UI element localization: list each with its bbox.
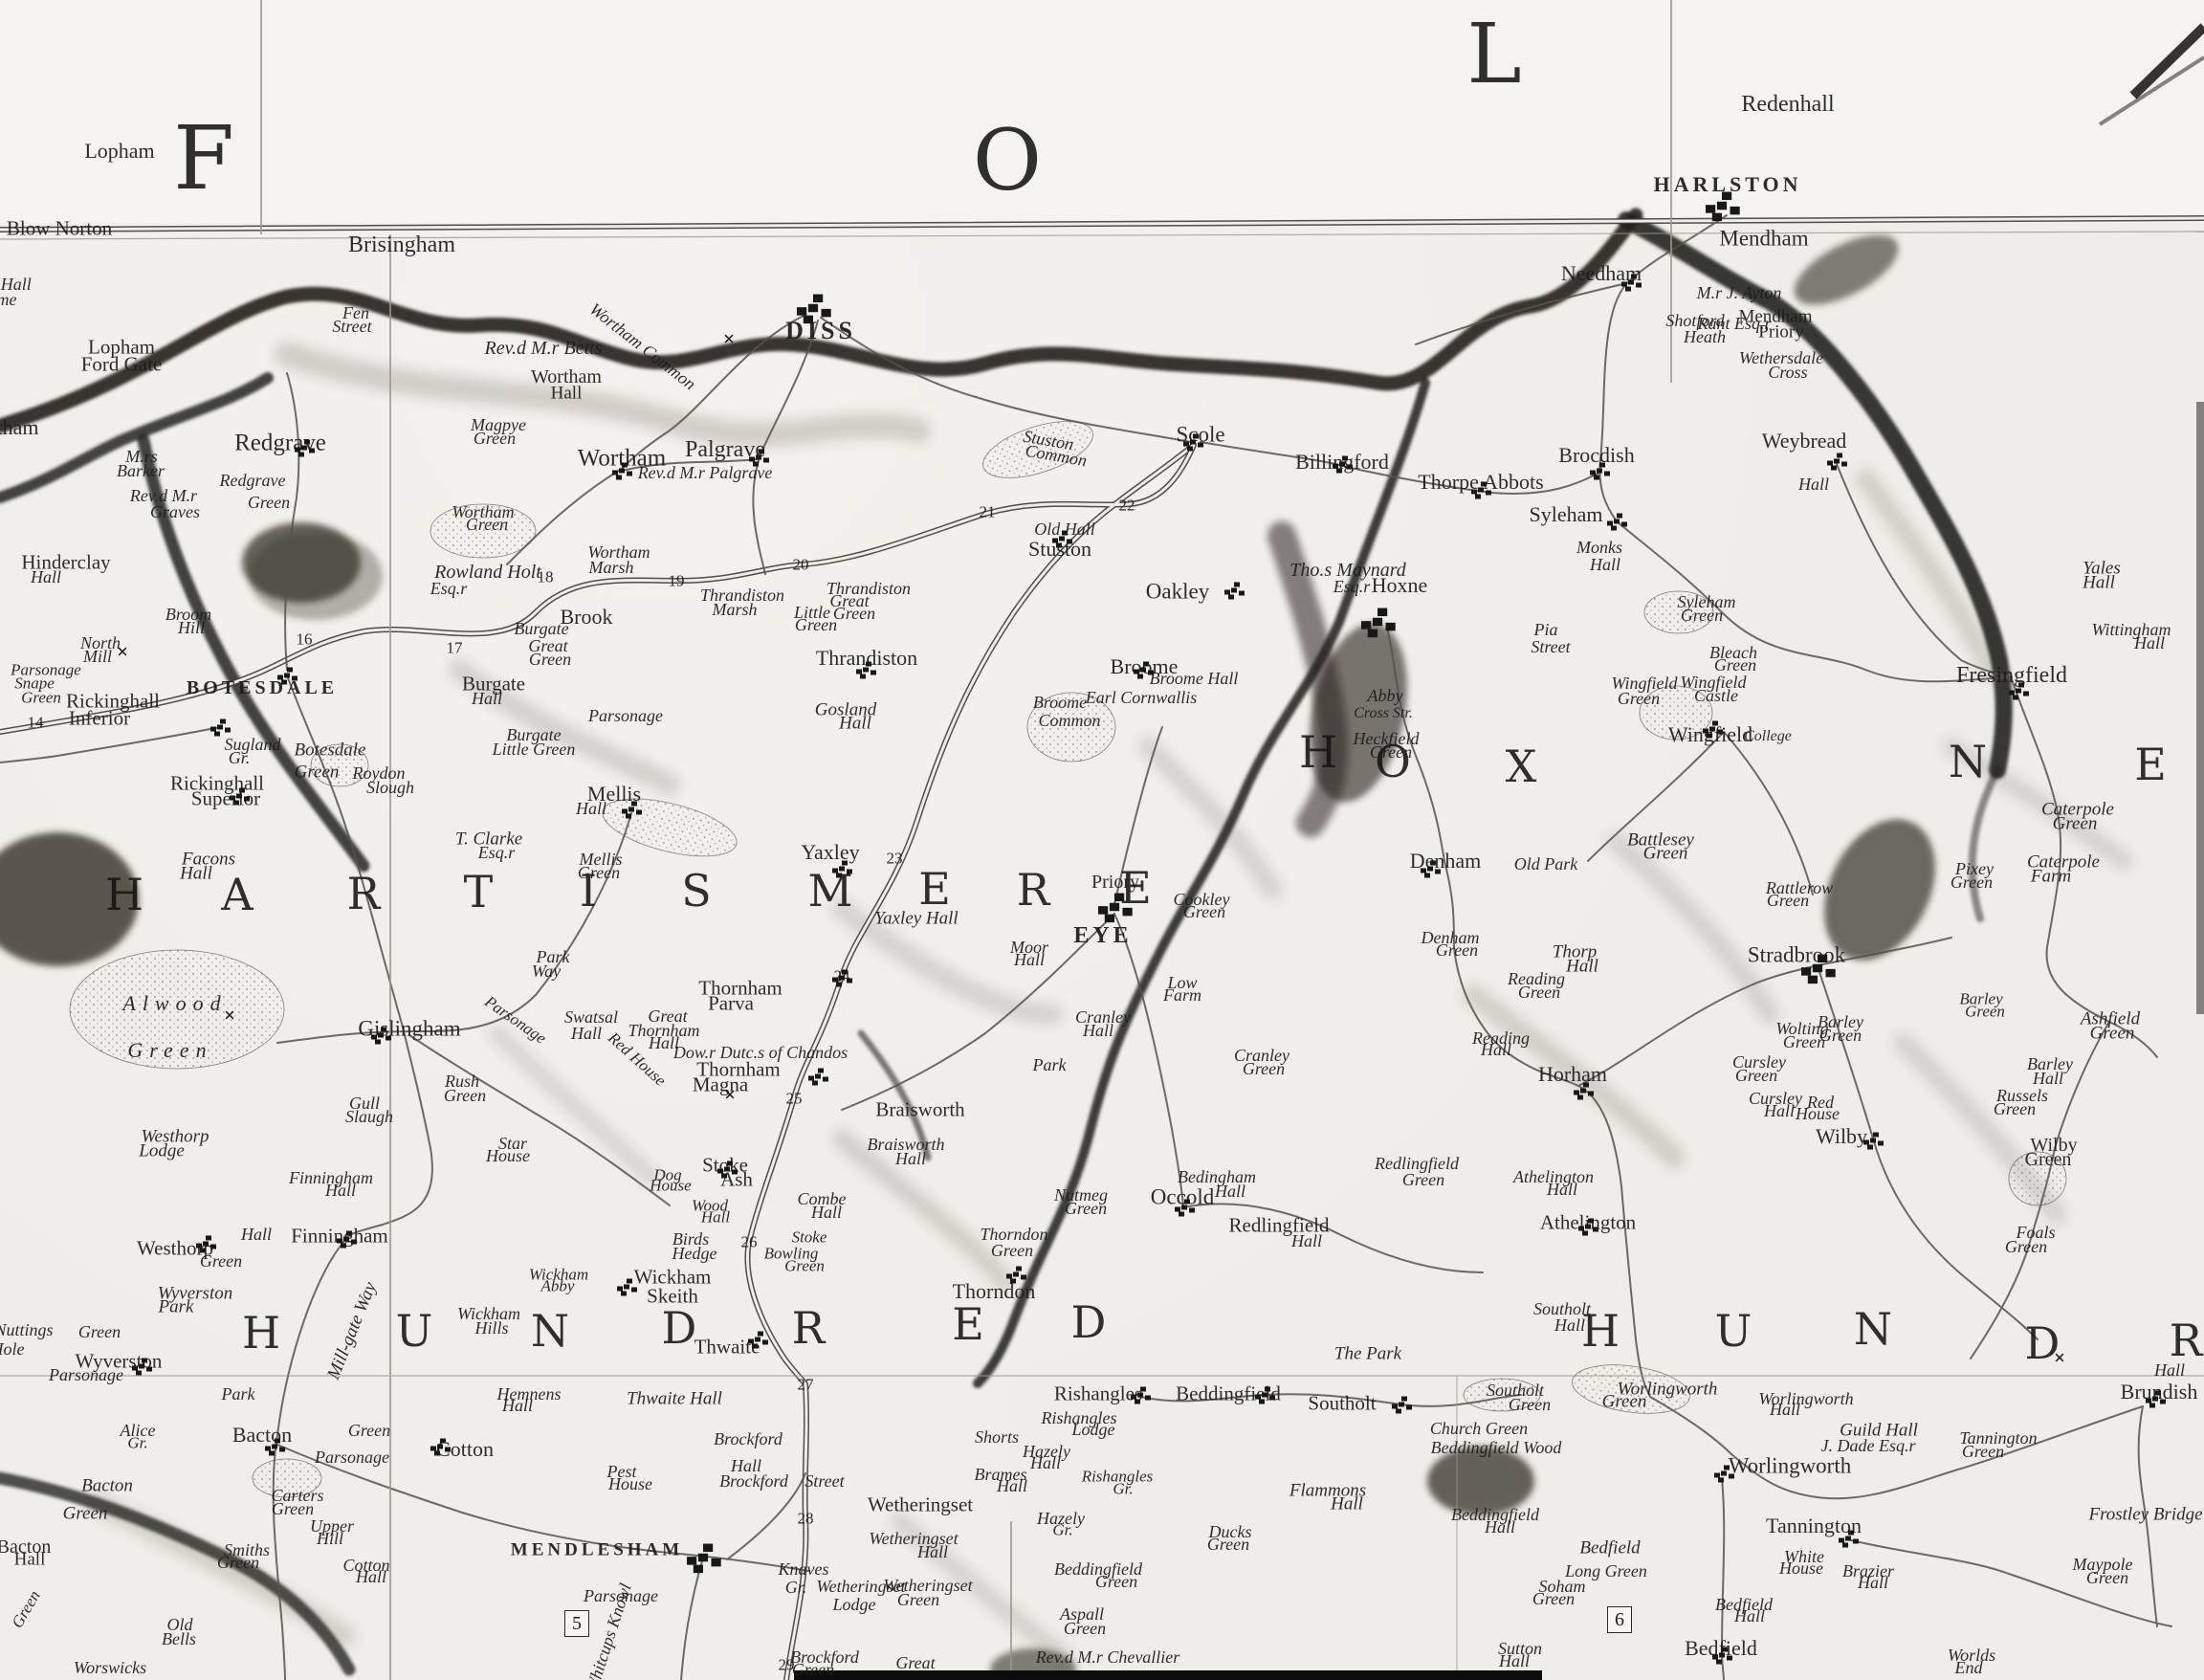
place-label: Hall	[241, 1226, 272, 1243]
settlement-mark	[343, 1237, 349, 1242]
place-label: Redgrave	[234, 431, 326, 455]
place-label: Brocdish	[1558, 445, 1634, 466]
place-label: Stradbrook	[1748, 944, 1845, 966]
milestone-number: 27	[798, 1377, 814, 1393]
place-label: Redenhall	[1741, 93, 1834, 116]
place-label: Priory	[1091, 873, 1139, 892]
hundred-letter-hundred-west: H	[242, 1311, 280, 1355]
settlement-mark	[1181, 1205, 1187, 1210]
place-label: Bells	[162, 1630, 196, 1647]
place-label: Hall	[2154, 1361, 2185, 1379]
place-label: Brockford	[714, 1430, 782, 1448]
windmill-icon: ✕	[224, 1009, 236, 1024]
hundred-letter-hoxne: X	[1506, 744, 1537, 788]
place-label: Gr.	[1052, 1522, 1072, 1538]
settlement-mark	[698, 1554, 708, 1562]
settlement-mark	[1262, 1393, 1267, 1398]
place-label: Green	[1735, 1067, 1777, 1084]
place-label: Brockford	[719, 1472, 788, 1490]
place-label: Green	[1643, 845, 1688, 863]
hundred-letter-hundred-west: U	[396, 1309, 433, 1353]
place-label: Abby	[541, 1278, 575, 1294]
place-label: End	[1955, 1659, 1983, 1676]
place-label: Syleham	[1530, 504, 1603, 525]
place-label: Farm	[2031, 868, 2071, 886]
place-label: Priory	[1758, 323, 1804, 342]
hundred-letter-hundred-west: E	[952, 1302, 984, 1346]
hundred-letter-hundred-west: D	[662, 1306, 697, 1350]
place-label: Worlingworth	[1729, 1455, 1851, 1477]
place-label: Green	[78, 1323, 121, 1340]
place-label: House	[650, 1178, 691, 1194]
place-label: Hall	[180, 865, 212, 883]
place-label: Ford Gate	[81, 355, 163, 375]
place-label: Green	[1602, 1393, 1647, 1411]
settlement-mark	[1614, 519, 1620, 524]
place-label: Graves	[150, 503, 200, 520]
place-label: Green	[1243, 1060, 1285, 1077]
place-label: Green	[2053, 815, 2098, 833]
place-label: Rishangles	[1054, 1384, 1142, 1404]
settlement-mark	[1339, 462, 1345, 467]
place-label: DISS	[785, 319, 856, 343]
place-label: Lopham	[84, 141, 154, 162]
place-label: Great	[895, 1654, 935, 1671]
settlement-mark	[2152, 1397, 2158, 1402]
place-label: Pia	[1534, 621, 1558, 638]
place-label: Green	[1783, 1033, 1825, 1050]
place-label: Green	[1509, 1396, 1551, 1413]
labels-layer: FOLHARTISMEREHOXNEHUNDREDHUNDRLophamBlow…	[0, 0, 2204, 1680]
settlement-mark	[2016, 689, 2021, 694]
place-label: Hall	[1331, 1495, 1363, 1514]
settlement-mark	[1140, 668, 1146, 673]
place-label: Denham	[1410, 851, 1482, 872]
place-label: Green	[1095, 1573, 1137, 1590]
place-label: Gr.	[229, 749, 251, 766]
place-label: Green	[1618, 690, 1660, 707]
place-label: MENDLESHAM	[511, 1541, 683, 1559]
windmill-icon: ✕	[2054, 1352, 2066, 1366]
place-label: Green	[474, 430, 516, 447]
milestone-number: 18	[538, 569, 554, 586]
place-label: Old Hall	[1034, 520, 1095, 538]
place-label: Green	[1065, 1200, 1107, 1217]
place-label: College	[1744, 729, 1792, 744]
place-label: Marsh	[588, 559, 633, 576]
place-label: Green	[578, 864, 620, 881]
place-label: Bacton	[81, 1477, 133, 1495]
windmill-icon: ✕	[723, 333, 736, 347]
place-label: Palgrave	[685, 438, 765, 461]
hundred-letter-hartismere: S	[681, 869, 712, 913]
hundred-letter-hundred-west: R	[792, 1306, 826, 1350]
place-label: Hall	[576, 800, 606, 817]
settlement-mark	[839, 867, 845, 872]
place-label: Green	[127, 1040, 212, 1061]
place-label: Hall	[31, 568, 61, 586]
place-label: Hall	[1499, 1652, 1530, 1669]
place-label: House	[1779, 1559, 1823, 1577]
place-label: Hill	[317, 1530, 343, 1547]
milestone-number: 19	[669, 573, 685, 589]
place-label: Little Green	[493, 741, 576, 758]
place-label: Slough	[366, 779, 414, 796]
place-label: Beddingfield Wood	[1431, 1439, 1562, 1456]
county-letter: L	[1466, 13, 1521, 96]
place-label: Hill	[178, 619, 205, 636]
place-label: Wilby	[1816, 1126, 1867, 1147]
place-label: Hills	[474, 1319, 508, 1337]
place-label: Shorts	[975, 1428, 1019, 1446]
place-label: Common	[1038, 712, 1100, 729]
place-label: Green	[1951, 873, 1993, 891]
place-label: Farm	[1163, 986, 1201, 1004]
settlement-mark	[1373, 618, 1382, 627]
place-label: Green	[795, 616, 837, 633]
place-label: Green	[1370, 743, 1412, 761]
place-label: Green	[2086, 1569, 2128, 1586]
settlement-mark	[628, 807, 634, 812]
place-label: Street	[804, 1472, 844, 1490]
place-label: Redgrave	[220, 472, 286, 489]
place-label: Scole	[1176, 424, 1224, 446]
place-label: Hall	[502, 1397, 533, 1414]
milestone-number: 22	[1119, 497, 1135, 514]
settlement-mark	[1580, 1089, 1586, 1094]
place-label: Hall	[1030, 1454, 1061, 1471]
hundred-letter-hartismere: M	[807, 869, 852, 913]
place-label: Green	[1436, 941, 1478, 959]
place-label: Marsh	[712, 601, 757, 618]
settlement-mark	[1709, 727, 1715, 732]
settlement-mark	[272, 1445, 277, 1449]
place-label: Rev.d M.r Betts	[485, 339, 603, 358]
place-label: Hall	[895, 1150, 926, 1167]
place-label: Ash	[720, 1170, 753, 1190]
place-label: Hall	[1566, 958, 1598, 976]
place-label: Skeith	[647, 1287, 698, 1307]
settlement-mark	[378, 1033, 384, 1038]
settlement-mark	[724, 1167, 730, 1172]
place-label: Alwood	[122, 993, 227, 1014]
place-label: Green	[295, 763, 340, 782]
place-label: Cotton	[436, 1439, 494, 1460]
settlement-mark	[1110, 903, 1119, 912]
place-label: Park	[222, 1385, 255, 1403]
place-label: Green	[2025, 1150, 2072, 1169]
settlement-mark	[1013, 1272, 1019, 1277]
place-label: Hall	[1764, 1102, 1795, 1119]
place-label: Parsonage	[588, 707, 663, 724]
place-label: Green	[991, 1242, 1033, 1259]
hundred-letter-hundred-east: R	[2170, 1318, 2203, 1362]
place-label: Common	[1024, 441, 1088, 469]
place-label: Broome	[1033, 694, 1087, 711]
place-label: Esq.r	[478, 844, 516, 861]
settlement-mark	[1059, 537, 1065, 542]
place-label: Cross Str.	[1354, 706, 1413, 721]
hundred-letter-hartismere: R	[1017, 868, 1050, 912]
place-label: Green	[897, 1591, 939, 1608]
place-label: Broome Hall	[1150, 670, 1239, 687]
place-label: Hall	[1554, 1316, 1585, 1334]
place-label: Mill-gate Way	[324, 1280, 380, 1382]
place-label: Green	[1532, 1590, 1575, 1607]
place-label: Hall	[1734, 1607, 1765, 1625]
settlement-mark	[808, 304, 818, 313]
place-label: Lodge	[1072, 1421, 1115, 1438]
place-label: Bacton	[232, 1425, 292, 1446]
place-label: Green	[1518, 984, 1560, 1001]
place-label: Green	[1714, 656, 1756, 674]
place-label: Old Park	[1514, 855, 1578, 873]
place-label: Green	[1994, 1100, 2036, 1117]
place-label: Hole	[0, 1340, 25, 1358]
place-label: Athelington	[1540, 1213, 1636, 1233]
settlement-mark	[619, 469, 625, 474]
place-label: Way	[532, 962, 561, 980]
place-label: Stoke	[792, 1229, 827, 1246]
place-label: Hall	[325, 1182, 356, 1199]
place-label: Green	[1767, 892, 1809, 909]
settlement-mark	[1719, 1653, 1725, 1658]
milestone-number: 14	[28, 715, 44, 731]
place-label: Green	[1064, 1620, 1106, 1637]
settlement-mark	[1813, 964, 1822, 973]
settlement-mark	[1845, 1536, 1851, 1541]
milestone-number: 20	[793, 557, 809, 573]
place-label: Hall	[1485, 1518, 1515, 1536]
place-label: Hall	[14, 1551, 46, 1569]
hundred-letter-hoxne: E	[2134, 742, 2167, 786]
milestone-number: 21	[980, 504, 996, 520]
settlement-mark	[284, 674, 290, 678]
place-label: Hall	[1014, 951, 1045, 968]
place-label: Green	[2005, 1238, 2047, 1255]
settlement-mark	[755, 1337, 760, 1342]
place-label: Hall	[1083, 1022, 1113, 1039]
place-label: Hedge	[672, 1245, 717, 1262]
place-label: Green	[348, 1422, 390, 1439]
place-label: Superior	[191, 789, 260, 809]
place-label: Rev.d M.r Chevallier	[1036, 1648, 1180, 1666]
place-label: Green	[529, 651, 571, 668]
place-label: Green	[444, 1087, 486, 1104]
place-label: Hall	[551, 385, 583, 403]
place-label: me	[0, 291, 17, 308]
settlement-mark	[1597, 469, 1602, 474]
settlement-mark	[437, 1445, 443, 1449]
place-label: Green	[1965, 1004, 2005, 1020]
place-label: Thwaite	[694, 1337, 760, 1358]
place-label: Burgate	[514, 620, 568, 637]
place-label: Green	[63, 1505, 108, 1523]
place-label: Magna	[693, 1075, 748, 1095]
settlement-mark	[236, 794, 242, 799]
place-label: Hall	[2033, 1070, 2063, 1087]
place-label: Gr.	[127, 1435, 147, 1451]
grid-reference-number: 6	[1607, 1606, 1632, 1633]
settlement-mark	[1137, 1393, 1143, 1398]
settlement-mark	[624, 1285, 629, 1290]
place-label: Green	[792, 1661, 834, 1678]
place-label: Hall	[1291, 1232, 1322, 1249]
place-label: Cross	[1768, 364, 1807, 381]
place-label: Parsonage	[315, 1448, 389, 1466]
hundred-letter-hoxne: H	[1299, 730, 1337, 774]
place-label: Barker	[117, 462, 165, 479]
place-label: BOTESDALE	[187, 678, 338, 697]
place-label: Hall	[811, 1204, 842, 1221]
place-label: Thrandiston	[816, 648, 917, 669]
milestone-number: 16	[297, 631, 313, 648]
place-label: Thelnetham	[0, 417, 39, 438]
place-label: Worswicks	[74, 1659, 146, 1676]
place-label: Hoxne	[1372, 575, 1428, 596]
place-label: Lodge	[833, 1596, 876, 1613]
place-label: J. Dade Esq.r	[1821, 1437, 1916, 1454]
hundred-letter-hundred-east: N	[1854, 1307, 1892, 1351]
place-label: Hall	[2083, 574, 2115, 592]
place-label: House	[486, 1147, 530, 1164]
place-label: Brundish	[2121, 1382, 2198, 1403]
place-label: Botesdale	[295, 741, 366, 760]
place-label: Hall	[649, 1034, 679, 1051]
windmill-icon: ✕	[724, 1089, 737, 1103]
settlement-mark	[203, 1242, 209, 1247]
place-label: Hall	[701, 1209, 730, 1226]
settlement-mark	[1721, 1471, 1727, 1476]
place-label: Abby	[1368, 687, 1403, 704]
milestone-number: 26	[741, 1234, 758, 1250]
place-label: Gr.	[785, 1579, 807, 1596]
milestone-number: 23	[887, 851, 903, 867]
hundred-letter-hundred-west: D	[1071, 1300, 1107, 1344]
place-label: EYE	[1073, 924, 1132, 947]
county-letter: F	[173, 115, 234, 203]
place-label: Bedfield	[1579, 1539, 1640, 1558]
place-label: Green	[466, 516, 508, 533]
place-label: Hall	[472, 690, 502, 707]
settlement-mark	[1427, 867, 1433, 872]
place-label: Tannington	[1766, 1515, 1862, 1536]
place-label: Street	[332, 318, 371, 335]
place-label: Mendham	[1719, 228, 1808, 250]
settlement-mark	[139, 1364, 144, 1369]
place-label: Green	[1207, 1536, 1249, 1553]
place-label: Hall	[839, 715, 871, 733]
place-label: Hall	[356, 1568, 386, 1585]
milestone-number: 28	[798, 1511, 814, 1527]
hundred-letter-hartismere: E	[918, 867, 951, 911]
place-label: Inferior	[69, 709, 130, 729]
place-label: Hall	[1215, 1183, 1245, 1200]
settlement-mark	[301, 446, 307, 451]
place-label: M.r J. Ayton	[1697, 284, 1782, 301]
place-label: Fresingfield	[1956, 664, 2067, 687]
hundred-letter-hartismere: T	[464, 870, 494, 914]
place-label: Green	[2090, 1025, 2135, 1043]
place-label: Weybread	[1762, 431, 1847, 452]
place-label: Esq.r	[430, 580, 468, 597]
hundred-letter-hartismere: H	[105, 873, 143, 917]
place-label: Hall	[1481, 1041, 1511, 1058]
settlement-mark	[756, 455, 761, 460]
place-label: Esq.r	[1333, 578, 1371, 595]
windmill-icon: ✕	[117, 646, 129, 660]
place-label: Oakley	[1146, 581, 1209, 603]
place-label: Yaxley Hall	[874, 910, 958, 928]
place-label: Green	[272, 1500, 314, 1517]
map-canvas: FOLHARTISMEREHOXNEHUNDREDHUNDRLophamBlow…	[0, 0, 2204, 1680]
milestone-number: 17	[447, 640, 463, 656]
place-label: Green	[784, 1258, 825, 1274]
hundred-letter-hartismere: A	[221, 873, 253, 917]
place-label: Yaxley	[801, 842, 859, 863]
place-label: Brisingham	[348, 233, 455, 256]
place-label: Rev.d M.r Palgrave	[638, 464, 773, 481]
place-label: Parva	[708, 994, 754, 1014]
county-letter: O	[973, 119, 1042, 203]
place-label: Southolt	[1308, 1394, 1376, 1414]
place-label: Street	[1531, 638, 1570, 655]
place-label: Thorndon	[953, 1281, 1036, 1302]
place-label: Gislingham	[358, 1018, 460, 1040]
place-label: Green	[217, 1554, 259, 1571]
place-label: Hall	[1547, 1181, 1577, 1198]
place-label: Wetheringset	[868, 1495, 973, 1515]
place-label: The Park	[1334, 1345, 1401, 1363]
settlement-mark	[217, 725, 223, 730]
place-label: Green	[833, 605, 875, 622]
place-label: HARLSTON	[1653, 174, 1801, 195]
place-label: Frostley Bridge	[2088, 1506, 2202, 1524]
settlement-mark	[1870, 1138, 1876, 1143]
settlement-mark	[1717, 202, 1727, 210]
place-label: Slaugh	[345, 1108, 393, 1125]
hundred-letter-hundred-east: U	[1715, 1309, 1752, 1353]
place-label: Green	[1962, 1443, 2004, 1460]
place-label: Hall	[1798, 475, 1829, 493]
milestone-number: 25	[786, 1091, 803, 1107]
place-label: Parsonage	[482, 993, 549, 1047]
place-label: Green	[21, 690, 61, 706]
place-label: Hall	[1590, 556, 1620, 573]
settlement-mark	[839, 976, 845, 981]
place-label: Mill	[83, 648, 112, 665]
place-label: Green	[200, 1252, 242, 1270]
place-label: House	[608, 1475, 652, 1492]
place-label: Monks	[1576, 539, 1622, 556]
place-label: Green	[1681, 607, 1723, 624]
settlement-mark	[1399, 1403, 1404, 1407]
place-label: Green	[9, 1588, 43, 1631]
place-label: Hall	[571, 1025, 602, 1042]
place-label: Finningham	[291, 1227, 388, 1247]
settlement-mark	[1628, 280, 1634, 285]
place-label: House	[1796, 1105, 1840, 1122]
place-label: Nuttings	[0, 1321, 54, 1338]
place-label: Wortham Common	[586, 299, 698, 392]
place-label: Green	[1402, 1171, 1444, 1188]
place-label: Park	[159, 1298, 194, 1316]
settlement-mark	[1190, 440, 1196, 445]
place-label: Hall	[2134, 634, 2165, 652]
place-label: Hall	[917, 1543, 948, 1560]
place-label: Horham	[1538, 1064, 1607, 1085]
place-label: Hall	[1770, 1401, 1800, 1418]
